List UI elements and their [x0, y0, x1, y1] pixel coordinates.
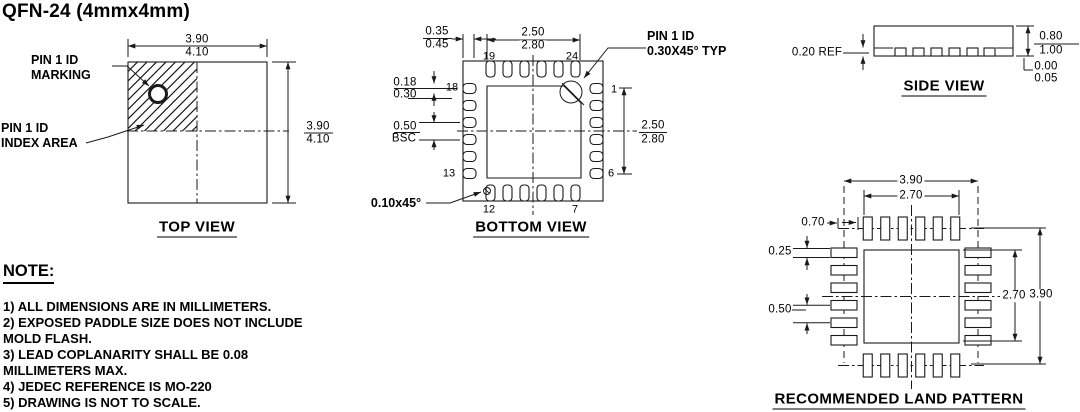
pin1-index-area-label: PIN 1 ID INDEX AREA [1, 121, 78, 151]
dim-topview-height-min: 4.10 [306, 134, 329, 146]
note-line: 3) LEAD COPLANARITY SHALL BE 0.08 [3, 347, 473, 363]
land-pattern-caption: RECOMMENDED LAND PATTERN [772, 391, 1025, 410]
pin1-marking-circle [150, 86, 167, 103]
dim-topview-width-max: 3.90 [185, 34, 208, 46]
page-title: QFN-24 (4mmx4mm) [2, 1, 190, 23]
top-view-caption: TOP VIEW [157, 219, 237, 238]
pin1-id-typ-label: PIN 1 ID 0.30X45° TYP [647, 29, 726, 59]
dim-body-height-max: 1.00 [1039, 45, 1062, 57]
dim-standoff-min: 0.00 [1034, 61, 1057, 73]
bottom-view-drawing [394, 34, 667, 215]
top-view-drawing [86, 39, 333, 203]
dim-pitch-value: 0.50 [393, 121, 416, 133]
dim-lead-length-max: 0.45 [425, 39, 448, 51]
pin-label-1: 1 [611, 85, 617, 96]
dim-lead-width-max: 0.30 [393, 89, 416, 101]
dim-land-pitch: 0.50 [768, 304, 791, 316]
note-line: 2) EXPOSED PADDLE SIZE DOES NOT INCLUDE [3, 315, 473, 331]
dim-topview-height-max: 3.90 [306, 121, 329, 133]
dim-lead-length-min: 0.35 [425, 26, 448, 38]
dim-paddle-width-min: 2.50 [519, 27, 546, 39]
side-view-caption: SIDE VIEW [901, 78, 986, 97]
note-line: MOLD FLASH. [3, 331, 473, 347]
pin1-marking-label: PIN 1 ID MARKING [31, 53, 91, 83]
pin-label-6: 6 [608, 169, 614, 180]
dim-topview-width-min: 4.10 [185, 47, 208, 59]
side-view-leads [895, 48, 995, 56]
pin-label-24: 24 [566, 52, 578, 63]
dim-lead-thickness: 0.20 REF [792, 47, 842, 59]
dim-lead-width-min: 0.18 [393, 77, 416, 89]
pin-label-18: 18 [446, 83, 458, 94]
dim-paddle-height-min: 2.50 [641, 120, 664, 132]
dim-land-outer-height: 3.90 [1027, 289, 1054, 301]
note-line: 5) DRAWING IS NOT TO SCALE. [3, 395, 473, 411]
dim-land-pad-width: 0.25 [768, 246, 791, 258]
dim-standoff-max: 0.05 [1034, 73, 1057, 85]
land-pattern-drawing [792, 181, 1046, 389]
chamfer-dim-label: 0.10x45° [371, 197, 421, 210]
dim-pitch-bsc: BSC [392, 133, 416, 145]
datasheet-package-drawing: QFN-24 (4mmx4mm) 3.90 4.10 3.90 4.10 PIN… [0, 0, 1080, 412]
pin-label-19: 19 [483, 52, 495, 63]
bottom-view-caption: BOTTOM VIEW [473, 219, 589, 238]
dim-land-inner-height: 2.70 [1000, 290, 1027, 302]
dim-body-height-min: 0.80 [1039, 31, 1062, 43]
notes-lines: 1) ALL DIMENSIONS ARE IN MILLIMETERS. 2)… [3, 299, 473, 411]
pin-label-13: 13 [443, 169, 455, 180]
notes-heading: NOTE: [3, 262, 54, 284]
note-line: 4) JEDEC REFERENCE IS MO-220 [3, 379, 473, 395]
dim-paddle-height-max: 2.80 [641, 134, 664, 146]
note-line: 1) ALL DIMENSIONS ARE IN MILLIMETERS. [3, 299, 473, 315]
dim-land-pad-length: 0.70 [801, 217, 824, 229]
exposed-paddle [487, 86, 581, 178]
pin-label-12: 12 [483, 205, 495, 216]
dim-land-inner-width: 2.70 [897, 190, 924, 202]
notes-block: NOTE: 1) ALL DIMENSIONS ARE IN MILLIMETE… [3, 262, 54, 284]
dim-paddle-width-max: 2.80 [519, 40, 546, 52]
dim-land-outer-width: 3.90 [897, 175, 924, 187]
pin-label-7: 7 [572, 205, 578, 216]
note-line: MILLIMETERS MAX. [3, 363, 473, 379]
